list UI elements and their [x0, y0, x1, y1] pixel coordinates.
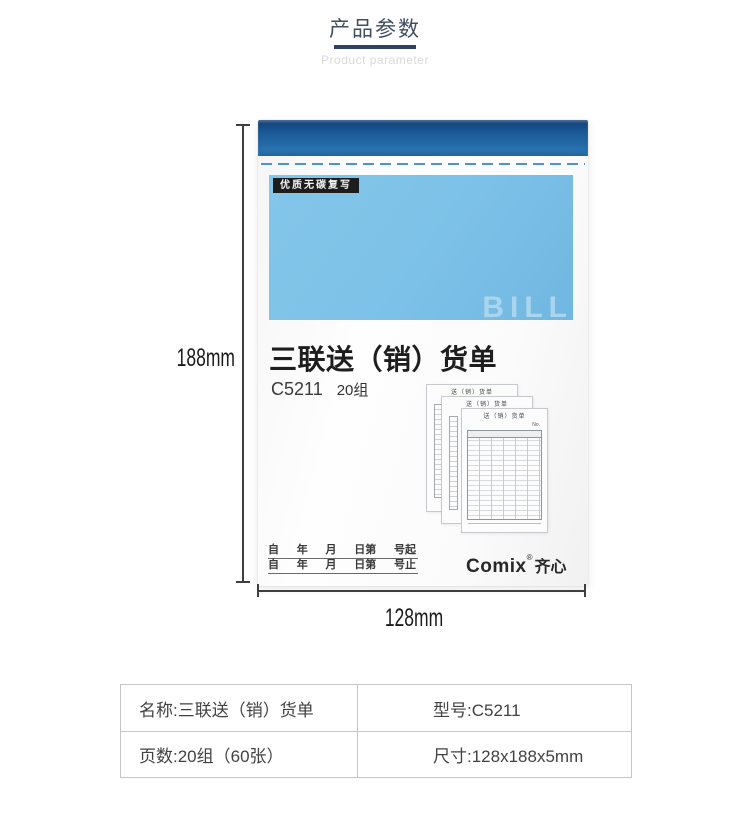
date-part: 日第 [354, 541, 376, 557]
quality-label: 优质无碳复写 [273, 178, 359, 193]
date-part: 自 [268, 556, 279, 572]
spec-model-cell: 型号:C5211 [358, 685, 631, 731]
brand-logo: Comix®齐心 [466, 553, 567, 578]
date-part: 号止 [394, 556, 416, 572]
date-part: 年 [297, 541, 308, 557]
width-dimension-label: 128mm [369, 604, 460, 633]
height-dimension-cap-top [236, 124, 250, 126]
product-name: 三联送（销）货单 [269, 338, 497, 378]
brand-logo-en: Comix [466, 556, 527, 577]
sample-sheet-no-label: No. [532, 422, 540, 428]
cover-blue-panel: 优质无碳复写 BILL [269, 175, 573, 320]
sample-sheet-front: 送（销）货单 No. [461, 408, 548, 533]
spec-pages-cell: 页数:20组（60张） [121, 732, 358, 777]
product-image: 优质无碳复写 BILL 三联送（销）货单 C521120组 送（销）货单 送（销… [258, 120, 588, 586]
height-dimension-line [242, 125, 244, 583]
width-dimension-line [258, 590, 586, 592]
group-count: 20组 [337, 382, 369, 399]
brand-logo-cn: 齐心 [534, 559, 566, 576]
sample-sheet-title: 送（销）货单 [462, 414, 547, 421]
perforation-dashed-line [261, 163, 585, 165]
product-parameter-page: 产品参数 Product parameter 优质无碳复写 BILL 三联送（销… [0, 0, 750, 823]
sample-forms: 送（销）货单 送（销）货单 送（销）货单 No. [426, 384, 552, 536]
title-underline [334, 45, 416, 49]
spec-table: 名称:三联送（销）货单 型号:C5211 页数:20组（60张） 尺寸:128x… [120, 684, 632, 778]
date-part: 自 [268, 541, 279, 557]
date-line-end: 自 年 月 日第 号止 [268, 559, 418, 574]
page-subtitle: Product parameter [0, 53, 750, 67]
sample-sheet-grid [467, 430, 542, 520]
model-code: C5211 [271, 379, 323, 399]
date-part: 日第 [354, 556, 376, 572]
bill-watermark: BILL [482, 293, 573, 323]
width-dimension-cap-left [257, 584, 259, 597]
table-row: 页数:20组（60张） 尺寸:128x188x5mm [121, 731, 631, 777]
table-row: 名称:三联送（销）货单 型号:C5211 [121, 685, 631, 731]
product-model-line: C521120组 [271, 379, 368, 400]
registered-mark-icon: ® [527, 553, 533, 562]
height-dimension-label: 188mm [165, 344, 235, 373]
date-part: 号起 [394, 541, 416, 557]
width-dimension-cap-right [584, 584, 586, 597]
binding-strip [258, 120, 588, 156]
height-dimension-cap-bottom [236, 581, 250, 583]
date-fill-lines: 自 年 月 日第 号起 自 年 月 日第 号止 [268, 544, 418, 574]
sample-sheet-footer-line [468, 523, 541, 527]
date-part: 月 [326, 541, 337, 557]
sample-sheet-column [449, 416, 458, 510]
date-part: 年 [297, 556, 308, 572]
spec-size-cell: 尺寸:128x188x5mm [358, 732, 631, 777]
spec-name-cell: 名称:三联送（销）货单 [121, 685, 358, 731]
date-part: 月 [326, 556, 337, 572]
page-title: 产品参数 [0, 13, 750, 43]
